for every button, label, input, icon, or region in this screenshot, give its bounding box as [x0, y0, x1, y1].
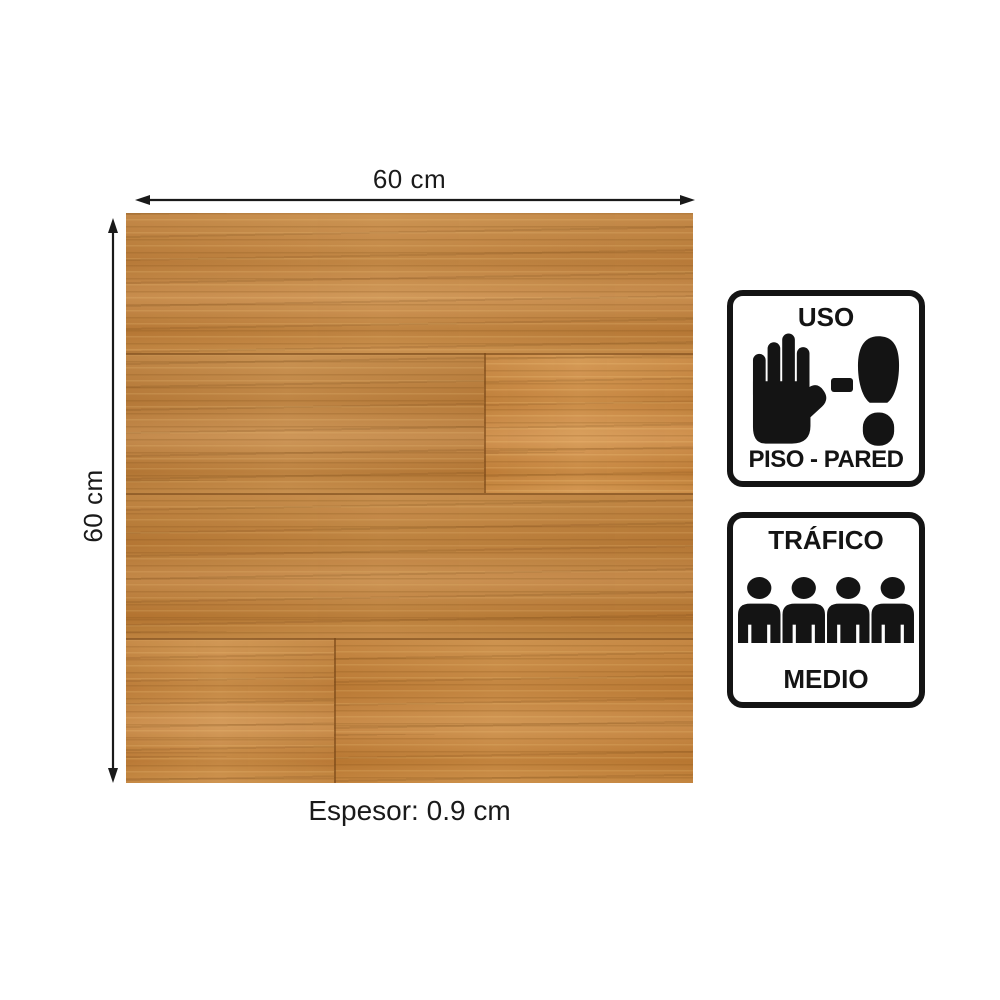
- plank-seam: [126, 638, 693, 640]
- wood-plank: [126, 493, 693, 638]
- wood-plank: [126, 638, 334, 783]
- wood-plank: [126, 353, 484, 493]
- horizontal-dimension-arrow: [135, 193, 695, 207]
- stop-hand-icon: [752, 332, 828, 446]
- trafico-badge-subtitle: MEDIO: [783, 666, 868, 692]
- uso-badge-title: USO: [798, 304, 854, 330]
- product-dimension-diagram: 60 cm 60 cm Espesor: 0.9 cm USO: [0, 0, 1000, 1000]
- dash-icon: [831, 378, 853, 392]
- wood-plank: [484, 353, 693, 493]
- uso-badge-subtitle: PISO - PARED: [749, 448, 904, 472]
- plank-seam: [484, 353, 486, 493]
- trafico-badge-title: TRÁFICO: [768, 527, 884, 553]
- wood-plank: [334, 638, 693, 783]
- thickness-label: Espesor: 0.9 cm: [126, 795, 693, 827]
- trafico-badge: TRÁFICO: [727, 512, 925, 708]
- footprint-icon: [856, 336, 901, 446]
- plank-seam: [334, 638, 336, 783]
- plank-seam: [126, 353, 693, 355]
- height-dimension-label: 60 cm: [78, 446, 108, 566]
- vertical-dimension-arrow: [106, 218, 120, 783]
- wood-plank: [126, 213, 693, 353]
- plank-seam: [126, 493, 693, 495]
- uso-icon-row: [752, 332, 901, 446]
- uso-badge: USO PISO - PARED: [727, 290, 925, 487]
- people-group-icon: [737, 577, 915, 643]
- width-dimension-label: 60 cm: [126, 164, 693, 195]
- wood-tile-image: [126, 213, 693, 783]
